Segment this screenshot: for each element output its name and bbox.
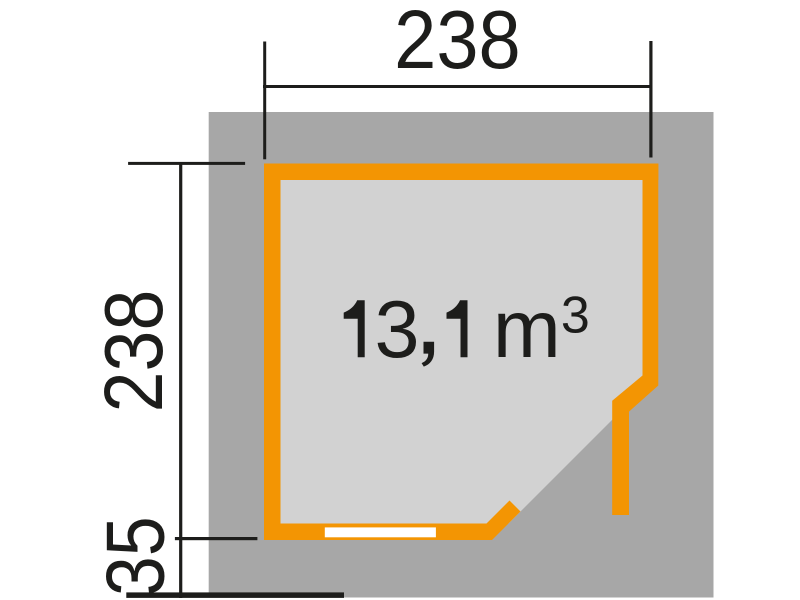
- svg-text:3: 3: [561, 286, 590, 344]
- svg-text:238: 238: [87, 290, 180, 413]
- svg-text:3: 3: [375, 285, 420, 375]
- svg-text:238: 238: [394, 0, 521, 86]
- svg-text:35: 35: [90, 516, 182, 596]
- svg-text:m: m: [493, 284, 561, 375]
